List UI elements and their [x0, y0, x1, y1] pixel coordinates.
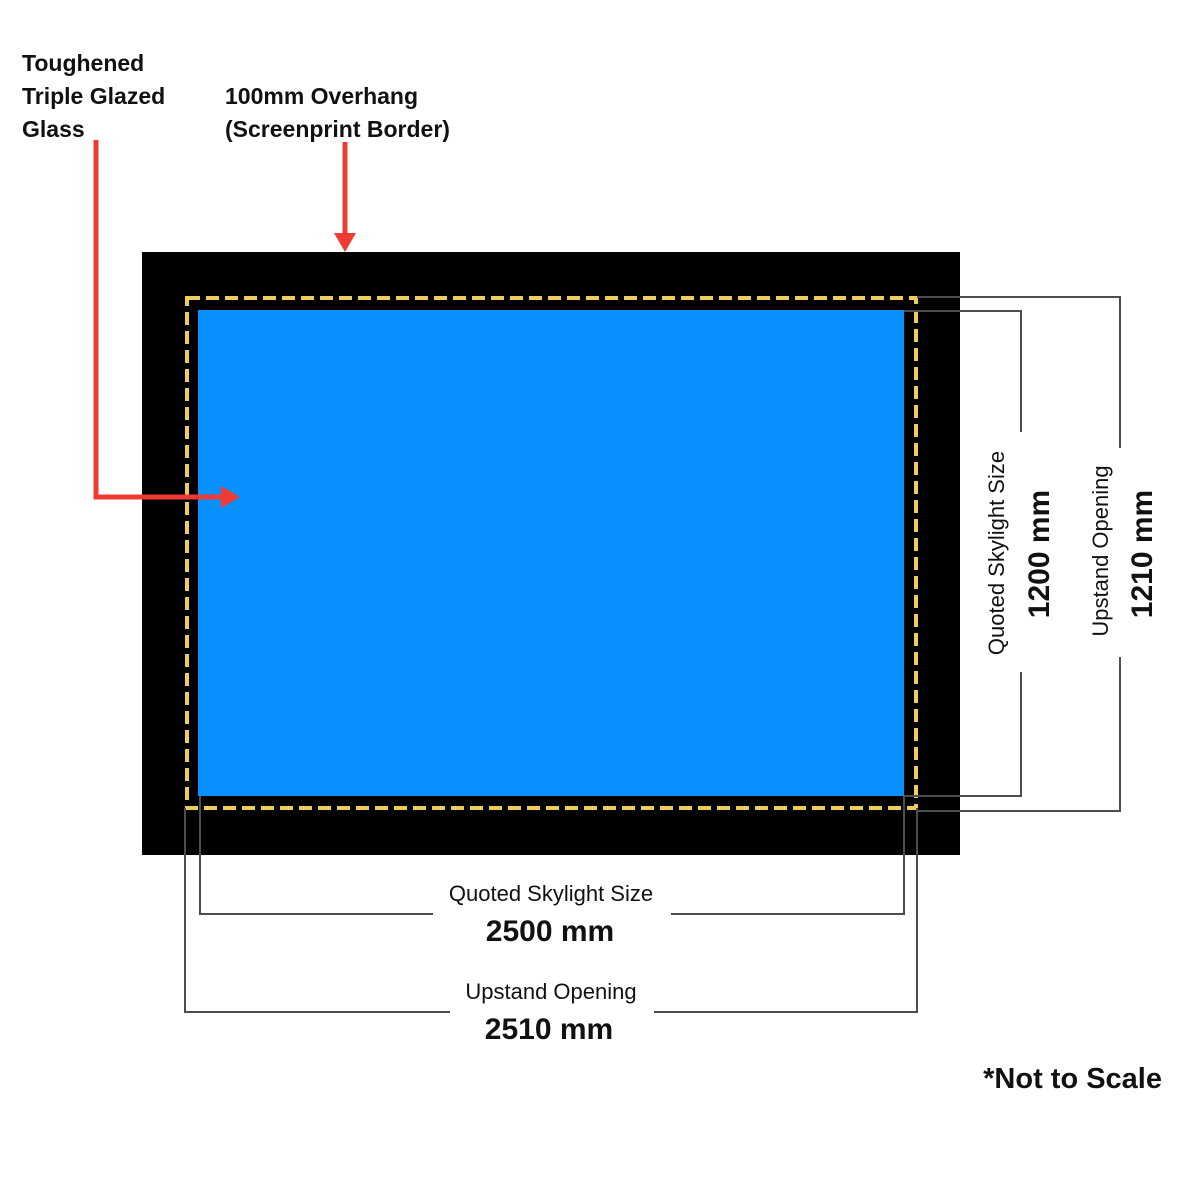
not-to-scale-note: *Not to Scale	[983, 1063, 1162, 1096]
dim-label-skylight-height: Quoted Skylight Size	[984, 451, 1010, 655]
overhang-annotation-line-1: 100mm Overhang	[225, 80, 450, 113]
dim-value-skylight-height: 1200 mm	[1023, 490, 1057, 618]
dim-value-upstand-height: 1210 mm	[1126, 490, 1160, 618]
dim-label-skylight-width: Quoted Skylight Size	[449, 881, 653, 907]
skylight-diagram-canvas: Toughened Triple Glazed Glass 100mm Over…	[0, 0, 1200, 1200]
glass-annotation-line-1: Toughened	[22, 47, 165, 80]
overhang-annotation-line-2: (Screenprint Border)	[225, 113, 450, 146]
overhang-annotation: 100mm Overhang (Screenprint Border)	[225, 80, 450, 146]
glass-panel	[198, 310, 904, 796]
dim-label-upstand-height: Upstand Opening	[1088, 465, 1114, 636]
dim-label-upstand-width: Upstand Opening	[465, 979, 636, 1005]
dim-value-upstand-width: 2510 mm	[485, 1013, 613, 1047]
overhang-pointer-arrowhead	[334, 233, 356, 252]
glass-annotation-line-2: Triple Glazed	[22, 80, 165, 113]
dim-value-skylight-width: 2500 mm	[486, 915, 614, 949]
glass-annotation: Toughened Triple Glazed Glass	[22, 47, 165, 146]
glass-annotation-line-3: Glass	[22, 113, 165, 146]
